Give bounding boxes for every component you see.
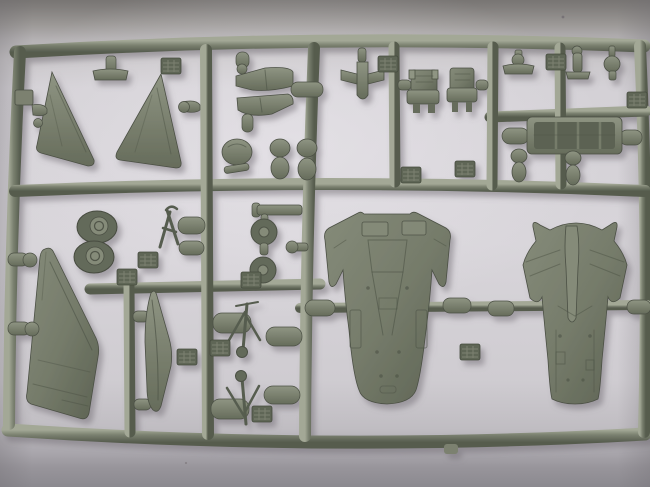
ejection-seat-part-1	[398, 70, 439, 113]
molding-pad	[401, 167, 421, 183]
molding-pad	[252, 406, 272, 422]
molding-pad	[161, 58, 181, 74]
bomb-body-parts	[270, 139, 317, 180]
wing-half-right-part	[116, 74, 181, 168]
round-blister-part	[222, 139, 252, 174]
pitot-mount-part	[93, 56, 128, 80]
flat-bar-part	[252, 203, 302, 217]
tow-bar-part	[160, 207, 178, 247]
rail-nub	[444, 444, 458, 454]
main-wheel-pair-part	[74, 211, 117, 273]
tank-half-blade-part	[133, 291, 172, 411]
small-stand-part	[566, 46, 590, 79]
molding-pad	[210, 340, 230, 356]
antenna-base-part	[503, 50, 534, 74]
fuselage-bottom-half-part	[305, 212, 471, 404]
molding-pad	[460, 344, 480, 360]
molding-pad	[378, 56, 398, 72]
ball-stub-part	[286, 241, 308, 253]
sprue-illustration	[0, 0, 650, 487]
molding-pad	[546, 54, 566, 70]
molding-pad	[177, 349, 197, 365]
wing-half-left-part	[37, 72, 95, 166]
finned-store-part	[341, 48, 384, 99]
intake-lower-part	[237, 94, 293, 132]
attachment-stub-cylinders	[178, 217, 205, 255]
sprue-photo	[0, 0, 650, 487]
molding-pad	[455, 161, 475, 177]
molding-pad	[138, 252, 158, 268]
fuselage-top-half-part	[488, 222, 650, 404]
molding-pad	[627, 92, 647, 108]
molding-pad	[241, 272, 261, 288]
molding-pad	[117, 269, 137, 285]
cockpit-tub-part	[502, 117, 642, 154]
ejection-seat-part-2	[447, 68, 488, 112]
